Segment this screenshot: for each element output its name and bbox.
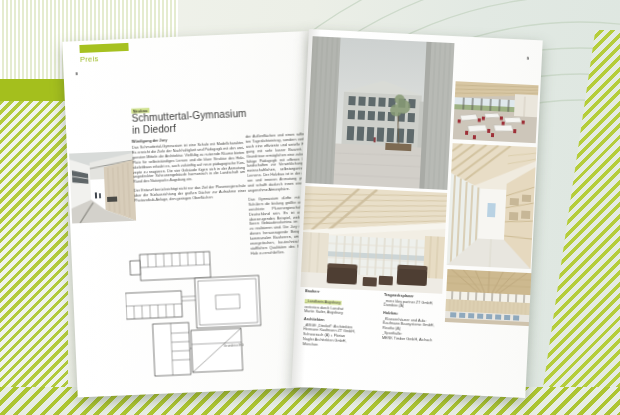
corridor-photo — [447, 143, 537, 269]
credits-column-left: Bauherr _Landkreis Augsburg vertreten du… — [302, 289, 383, 350]
credit-group-holzbau: Holzbau _Klassenhäuser und Aula: Kaufman… — [382, 311, 466, 344]
right-page: 9 — [292, 29, 543, 398]
jury-paragraph-2: Der Entwurf berücksichtigt nicht nur das… — [134, 183, 247, 203]
preis-tab-label: Preis — [80, 54, 99, 64]
floor-plan-drawing — [123, 243, 320, 379]
left-page-number-wrap: 8 — [75, 67, 78, 77]
credits-column-right: Tragwerksplaner _merz kley partner ZT Gm… — [382, 293, 467, 345]
credit-group-bauherr: Bauherr _Landkreis Augsburg vertreten du… — [304, 289, 383, 318]
walkway-photo — [69, 151, 136, 224]
courtyard-photo — [305, 36, 454, 190]
bg-diagonal-stripes-left-edge — [0, 101, 68, 415]
credit-group-architekten: Architekten _ARGE „Diedorf“: Architekten… — [302, 317, 381, 350]
article-title: Schmuttertal-Gymnasium in Diedorf — [131, 105, 308, 136]
plan-caption-wrap: Grundriss EG — [223, 338, 243, 349]
plan-caption: Grundriss EG — [224, 343, 244, 347]
left-page-number: 8 — [76, 72, 78, 76]
left-page: Preis 8 — [62, 31, 324, 397]
jury-text-column-1: Würdigung der Jury Das Schmuttertal-Gymn… — [132, 135, 249, 260]
jury-paragraph-1: Das Schmuttertal-Gymnasium ist eine Schu… — [132, 140, 246, 184]
atrium-lounge-photo — [300, 186, 447, 294]
magazine-spread-scene: Preis 8 — [0, 0, 620, 415]
classroom-photo — [453, 81, 539, 143]
right-page-number-wrap: 9 — [527, 52, 530, 62]
credit-group-tragwerksplaner: Tragwerksplaner _merz kley partner ZT Gm… — [383, 293, 466, 312]
preis-tab-bar — [79, 43, 128, 53]
right-page-number: 9 — [527, 56, 529, 60]
